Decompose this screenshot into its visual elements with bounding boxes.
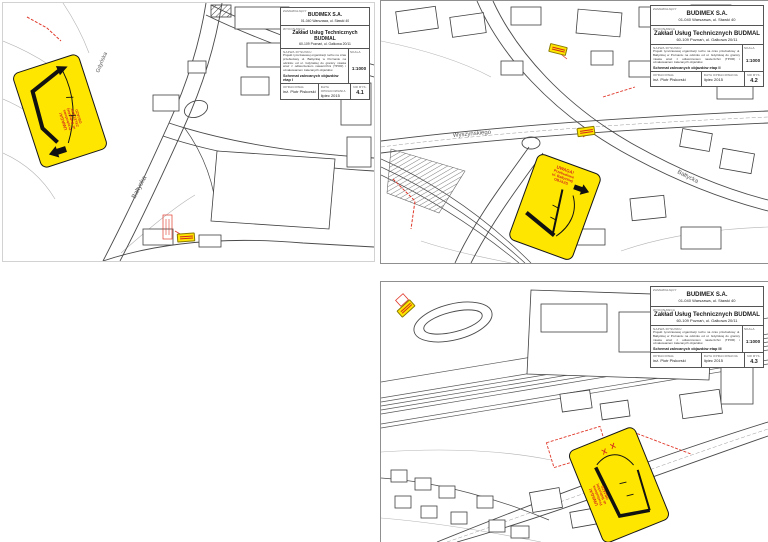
number-label: NR RYS. [747, 73, 761, 77]
drawing-title: Schemat zalecanych objazdów etap II [653, 66, 740, 70]
scale-cell: SKALA 1:1000 [743, 45, 763, 71]
date-value: lipiec 2015 [704, 358, 742, 363]
author-cell: OPRACOWAŁ inż. Piotr Piskorski [651, 353, 702, 367]
date-cell: DATA OPRACOWANIA lipiec 2015 [319, 84, 351, 99]
drawing-number: 4.3 [747, 359, 761, 366]
street-label-gdynska: Gdyńska [95, 51, 109, 74]
author-name: inż. Piotr Piskorski [283, 89, 316, 94]
client-address: 01-040 Warszawa, ul. Stawki 40 [283, 19, 367, 23]
title-block: ZAMAWIAJĄCY BUDIMEX S.A. 01-040 Warszawa… [650, 5, 764, 87]
street-labels: Bałtycka Gdyńska [95, 51, 148, 200]
scale-value: 1:1000 [352, 66, 366, 71]
scale-cell: SKALA 1:1000 [349, 49, 369, 82]
number-label: NR RYS. [747, 354, 761, 358]
panel-2: Wyszyńskiego Bałtycka UWAGA! Przebudowa [380, 0, 768, 264]
client-section: ZAMAWIAJĄCY BUDIMEX S.A. 01-040 Warszawa… [281, 8, 369, 26]
scale-value: 1:1000 [746, 339, 760, 344]
client-section: ZAMAWIAJĄCY BUDIMEX S.A. 01-040 Warszawa… [651, 6, 763, 26]
date-cell: DATA OPRACOWANIA lipiec 2015 [702, 353, 745, 367]
drawing-number: 4.1 [353, 90, 367, 97]
drawing-description: Projekt tymczasowej organizacji ruchu na… [283, 54, 346, 72]
contractor-name: Zakład Usług Technicznych BUDMAL [283, 31, 367, 43]
scale-label: SKALA [743, 45, 763, 50]
drawing-sheet: Bałtycka Gdyńska UWAGA! Przebudow [0, 0, 768, 542]
client-address: 01-040 Warszawa, ul. Stawki 40 [653, 18, 761, 23]
signature-row: OPRACOWAŁ inż. Piotr Piskorski DATA OPRA… [651, 72, 763, 86]
date-value: lipiec 2015 [321, 93, 348, 98]
client-section: ZAMAWIAJĄCY BUDIMEX S.A. 01-040 Warszawa… [651, 287, 763, 307]
number-cell: NR RYS. 4.3 [745, 353, 763, 367]
drawing-name-section: NAZWA RYSUNKU Projekt tymczasowej organi… [281, 49, 369, 83]
drawing-description-cell: NAZWA RYSUNKU Projekt tymczasowej organi… [651, 326, 743, 352]
number-cell: NR RYS. 4.1 [351, 84, 369, 99]
drawing-description: Projekt tymczasowej organizacji ruchu na… [653, 50, 740, 64]
scale-cell: SKALA 1:1000 [743, 326, 763, 352]
title-block: ZAMAWIAJĄCY BUDIMEX S.A. 01-040 Warszawa… [280, 7, 370, 100]
contractor-address: 60-109 Poznań, ul. Gałkowa 20/11 [283, 42, 367, 46]
contractor-address: 60-109 Poznań, ul. Gałkowa 20/11 [653, 319, 761, 324]
hatched-area [387, 149, 465, 213]
signature-row: OPRACOWAŁ inż. Piotr Piskorski DATA OPRA… [281, 84, 369, 99]
author-name: inż. Piotr Piskorski [653, 358, 699, 363]
drawing-title: Schemat zalecanych objazdów etap I [283, 74, 346, 82]
scale-label: SKALA [349, 49, 369, 54]
number-cell: NR RYS. 4.2 [745, 72, 763, 86]
date-label: DATA OPRACOWANIA [321, 85, 348, 93]
signature-row: OPRACOWAŁ inż. Piotr Piskorski DATA OPRA… [651, 353, 763, 367]
author-cell: OPRACOWAŁ inż. Piotr Piskorski [651, 72, 702, 86]
contractor-section: WYKONAWCA Zakład Usług Technicznych BUDM… [651, 307, 763, 327]
drawing-title: Schemat zalecanych objazdów etap III [653, 347, 740, 351]
street-label-wyszynskiego: Wyszyńskiego [453, 130, 492, 139]
contractor-section: WYKONAWCA Zakład Usług Technicznych BUDM… [651, 26, 763, 46]
drawing-description-cell: NAZWA RYSUNKU Projekt tymczasowej organi… [281, 49, 349, 82]
contractor-section: WYKONAWCA Zakład Usług Technicznych BUDM… [281, 26, 369, 50]
date-cell: DATA OPRACOWANIA lipiec 2015 [702, 72, 745, 86]
date-value: lipiec 2015 [704, 77, 742, 82]
title-block: ZAMAWIAJĄCY BUDIMEX S.A. 01-040 Warszawa… [650, 286, 764, 368]
author-name: inż. Piotr Piskorski [653, 77, 699, 82]
author-cell: OPRACOWAŁ inż. Piotr Piskorski [281, 84, 319, 99]
drawing-name-section: NAZWA RYSUNKU Projekt tymczasowej organi… [651, 45, 763, 72]
drawing-number: 4.2 [747, 78, 761, 85]
scale-value: 1:1000 [746, 58, 760, 63]
panel-3: Bałtycka UWAGA! Przebudowa ul. Bałtyckie… [380, 281, 768, 542]
contractor-address: 60-109 Poznań, ul. Gałkowa 20/11 [653, 38, 761, 43]
client-address: 01-040 Warszawa, ul. Stawki 40 [653, 299, 761, 304]
drawing-description: Projekt tymczasowej organizacji ruchu na… [653, 331, 740, 345]
drawing-name-section: NAZWA RYSUNKU Projekt tymczasowej organi… [651, 326, 763, 353]
detour-arrow-icon [47, 143, 68, 160]
drawing-description-cell: NAZWA RYSUNKU Projekt tymczasowej organi… [651, 45, 743, 71]
scale-label: SKALA [743, 326, 763, 331]
mini-detour-sign [177, 232, 196, 242]
panel-1: Bałtycka Gdyńska UWAGA! Przebudow [2, 2, 375, 262]
number-label: NR RYS. [353, 85, 367, 89]
street-label-baltycka: Bałtycka [131, 175, 149, 200]
